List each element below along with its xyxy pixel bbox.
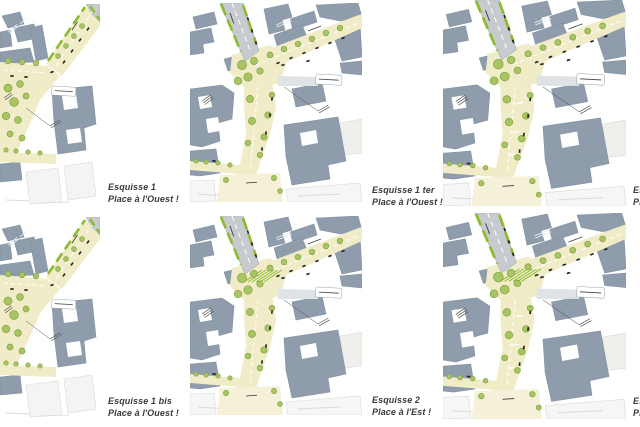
sketch-map-drawing	[0, 4, 100, 206]
caption-title: Esquisse	[633, 185, 640, 197]
caption-esquisse-2: Esquisse 2 Place à l'Est !	[372, 395, 431, 418]
caption-esquisse-1-ter: Esquisse 1 ter Place à l'Ouest !	[372, 185, 443, 208]
caption-subtitle: Place	[633, 197, 640, 209]
caption-subtitle: Place à l'Est !	[372, 407, 431, 419]
caption-title: Esquisse 1	[108, 182, 179, 194]
map-esquisse-top-right	[443, 0, 626, 206]
map-esquisse-1-ter	[190, 3, 362, 202]
map-esquisse-bottom-right	[443, 213, 626, 419]
caption-subtitle: Place à l'Ouest !	[108, 408, 179, 420]
sketch-map-drawing	[190, 3, 362, 202]
caption-esquisse-1-bis: Esquisse 1 bis Place à l'Ouest !	[108, 396, 179, 419]
caption-subtitle: Place	[633, 408, 640, 420]
map-esquisse-2	[190, 216, 362, 415]
sketch-map-drawing	[0, 217, 100, 419]
map-esquisse-1-bis	[0, 217, 100, 419]
sketch-map-drawing	[443, 213, 626, 419]
caption-title: Esquisse 2	[372, 395, 431, 407]
caption-esquisse-1: Esquisse 1 Place à l'Ouest !	[108, 182, 179, 205]
caption-subtitle: Place à l'Ouest !	[108, 194, 179, 206]
caption-title: Esquisse 1 ter	[372, 185, 443, 197]
caption-esquisse-top-right-clipped: Esquisse Place	[633, 185, 640, 208]
caption-title: Esquisse 1 bis	[108, 396, 179, 408]
caption-esquisse-bottom-right-clipped: Esquisse Place	[633, 396, 640, 419]
caption-subtitle: Place à l'Ouest !	[372, 197, 443, 209]
caption-title: Esquisse	[633, 396, 640, 408]
map-esquisse-1	[0, 4, 100, 206]
sketch-map-drawing	[443, 0, 626, 206]
sketch-map-drawing	[190, 216, 362, 415]
figure-page: Esquisse 1 Place à l'Ouest ! Esquisse 1 …	[0, 0, 640, 427]
